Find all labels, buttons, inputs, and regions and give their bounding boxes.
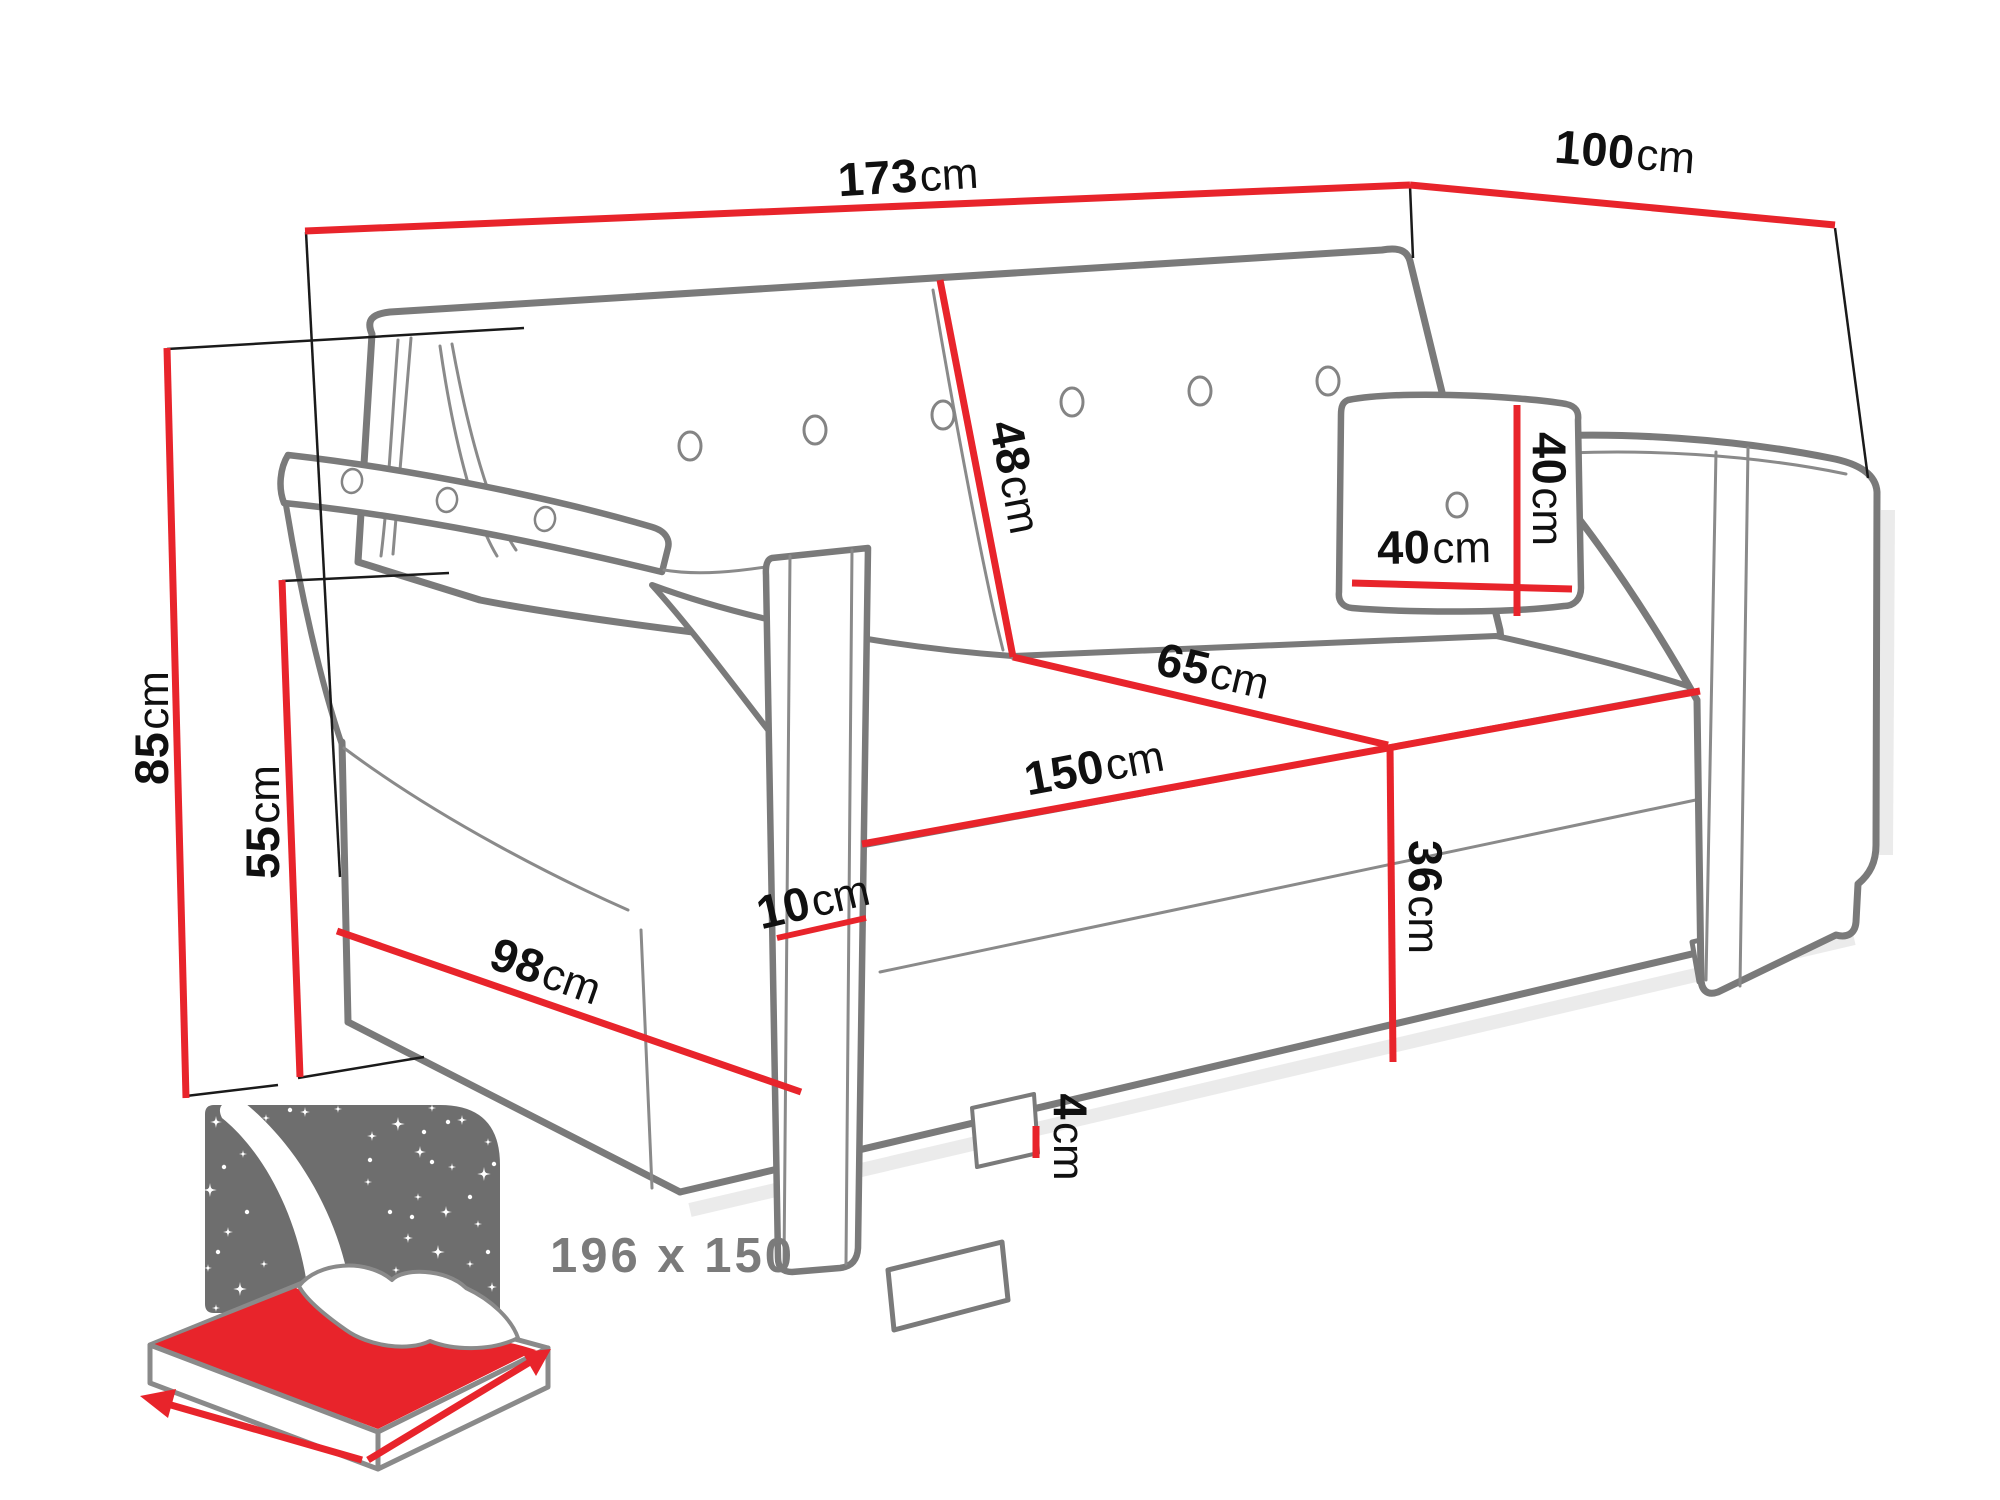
dim-value: 173 xyxy=(836,148,919,206)
dim-value: 40 xyxy=(1523,432,1576,485)
sleeping-area-icon xyxy=(140,1103,551,1469)
dim-value: 65 xyxy=(1152,632,1216,696)
dim-unit: cm xyxy=(240,765,289,824)
dim-label-pillow-height-40: 40cm xyxy=(1525,432,1573,546)
dim-label-height-85: 85cm xyxy=(128,671,176,785)
diagram-canvas xyxy=(0,0,2000,1500)
dim-value: 40 xyxy=(1377,520,1431,574)
dim-unit: cm xyxy=(1044,1122,1093,1181)
dim-line-seatheight-36 xyxy=(1390,745,1393,1062)
dim-unit: cm xyxy=(1635,130,1697,183)
dim-line-depth-100 xyxy=(1410,185,1835,225)
dim-unit: cm xyxy=(1432,523,1492,573)
dim-label-armrest-55: 55cm xyxy=(239,765,287,879)
dim-value: 4 xyxy=(1044,1093,1097,1120)
dim-unit: cm xyxy=(129,671,178,730)
sofa-dimension-diagram: 173cm 100cm 85cm 55cm 48cm 40cm 40cm 65c… xyxy=(0,0,2000,1500)
pillow-button xyxy=(1447,493,1467,517)
dim-label-width-173: 173cm xyxy=(836,148,979,204)
dim-value: 36 xyxy=(1399,840,1452,893)
dim-label-pillow-width-40: 40cm xyxy=(1377,522,1492,572)
dim-unit: cm xyxy=(990,471,1049,538)
backrest xyxy=(358,249,1502,665)
dim-value: 48 xyxy=(980,416,1042,478)
dim-unit: cm xyxy=(1399,895,1448,954)
dim-value: 85 xyxy=(125,732,178,785)
dim-label-seatheight-36: 36cm xyxy=(1401,840,1449,954)
dim-label-depth-100: 100cm xyxy=(1553,123,1697,182)
dim-value: 55 xyxy=(236,826,289,879)
dim-value: 100 xyxy=(1553,120,1637,179)
dim-unit: cm xyxy=(1523,487,1572,546)
sleeping-area-size-label: 196 x 150 xyxy=(550,1228,795,1284)
dim-label-leg-4: 4cm xyxy=(1046,1093,1094,1180)
dim-unit: cm xyxy=(918,149,980,201)
